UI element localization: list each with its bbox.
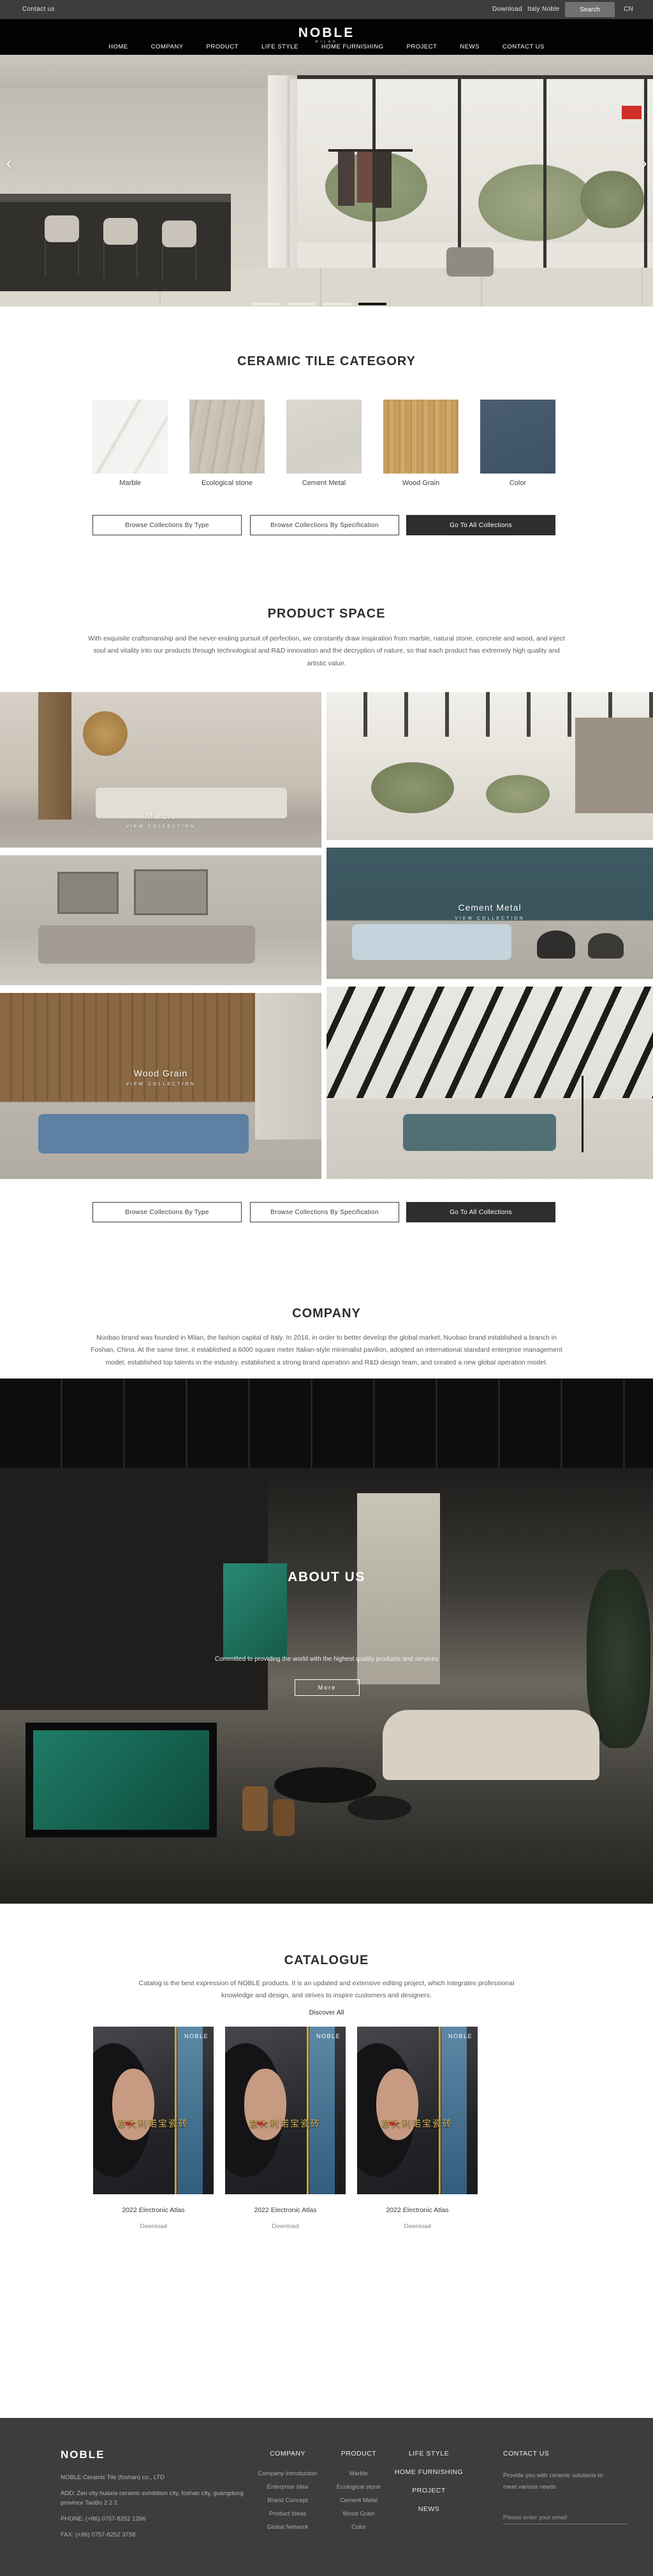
footer-col-title: CONTACT US xyxy=(503,2450,637,2457)
gallery-decor xyxy=(134,869,208,915)
catalogue-download-link[interactable]: Download xyxy=(357,2223,478,2230)
main-nav: HOME COMPANY PRODUCT LIFE STYLE HOME FUR… xyxy=(0,43,653,50)
nav-product[interactable]: PRODUCT xyxy=(207,43,238,50)
nav-contact-us[interactable]: CONTACT US xyxy=(503,43,545,50)
footer-link[interactable]: Marble xyxy=(322,2470,395,2477)
gallery-wood-grain-image[interactable]: Wood Grain VIEW COLLECTION xyxy=(0,993,321,1179)
gallery-grey-room-image[interactable] xyxy=(0,855,321,985)
browse-by-type-button[interactable]: Browse Collections By Type xyxy=(92,515,242,535)
bar-stool-decor xyxy=(162,221,196,247)
bar-stool-decor xyxy=(103,242,138,278)
hero-garment-decor xyxy=(357,152,372,203)
catalogue-cover-3[interactable]: NOBLE 意大利诺宝瓷砖 xyxy=(357,2027,478,2194)
gallery-decor xyxy=(255,993,321,1140)
footer-link[interactable]: Product Ideas xyxy=(246,2510,330,2517)
hero-garment-decor xyxy=(338,152,355,206)
gallery-decor xyxy=(486,775,550,813)
nav-company[interactable]: COMPANY xyxy=(151,43,184,50)
footer-link[interactable]: Color xyxy=(322,2524,395,2531)
product-space-paragraph: With exquisite craftsmanship and the nev… xyxy=(84,633,569,670)
contact-us-link[interactable]: Contact us xyxy=(22,6,55,13)
footer-col-contact: CONTACT US Provide you with ceramic solu… xyxy=(503,2450,637,2524)
tile-swatch-marble[interactable] xyxy=(92,400,168,474)
about-stool-decor xyxy=(273,1799,295,1836)
hero-carousel: ‹ › xyxy=(0,55,653,307)
hero-plant-decor xyxy=(478,164,593,241)
footer-link[interactable]: Enterprise Idea xyxy=(246,2484,330,2491)
language-toggle[interactable]: CN xyxy=(624,6,633,13)
gallery-cement-label: Cement Metal xyxy=(326,902,653,913)
gallery-marble-label: Marble xyxy=(0,811,321,821)
cover-decor xyxy=(309,2027,335,2194)
tile-swatch-ecological-stone[interactable] xyxy=(189,400,265,474)
nav-news[interactable]: NEWS xyxy=(460,43,480,50)
cover-brand: NOBLE xyxy=(316,2033,341,2039)
hero-curtain-decor xyxy=(268,75,297,268)
gallery-decor xyxy=(403,1114,556,1151)
gallery-decor xyxy=(582,1076,583,1152)
hero-plant-decor xyxy=(580,171,644,228)
search-button[interactable]: Search xyxy=(565,2,615,17)
cover-title: 意大利诺宝瓷砖 xyxy=(361,2117,473,2130)
carousel-dash-active[interactable] xyxy=(358,303,386,305)
category-title: CERAMIC TILE CATEGORY xyxy=(0,354,653,369)
gallery-cement-metal-image[interactable]: Cement Metal VIEW COLLECTION xyxy=(326,848,653,979)
carousel-dash[interactable] xyxy=(287,303,315,305)
catalogue-paragraph: Catalog is the best expression of NOBLE … xyxy=(122,1978,531,2002)
email-input[interactable] xyxy=(503,2512,627,2524)
italy-noble-link[interactable]: Italy Noble xyxy=(527,6,560,13)
tile-label: Ecological stone xyxy=(189,479,265,487)
about-stool-decor xyxy=(242,1786,268,1831)
company-title: COMPANY xyxy=(0,1306,653,1321)
cover-title: 意大利诺宝瓷砖 xyxy=(229,2117,341,2130)
footer-col-company: COMPANY Company Introduction Enterprise … xyxy=(246,2450,330,2537)
footer-col-title: PRODUCT xyxy=(322,2450,395,2457)
gallery-decor xyxy=(57,872,119,914)
footer-link[interactable]: PROJECT xyxy=(386,2487,472,2494)
footer-contact-text: Provide you with ceramic solutions to me… xyxy=(503,2470,618,2493)
hero-garment-decor xyxy=(375,152,392,208)
footer-link[interactable]: Cement Metal xyxy=(322,2497,395,2504)
next-arrow-icon[interactable]: › xyxy=(638,150,650,176)
cover-decor xyxy=(439,2027,441,2194)
gallery-view-collection: VIEW COLLECTION xyxy=(0,1082,321,1087)
footer-link[interactable]: HOME FURNISHING xyxy=(386,2468,472,2476)
browse-by-spec-button[interactable]: Browse Collections By Specification xyxy=(250,515,399,535)
download-link[interactable]: Download xyxy=(492,6,522,13)
gallery-decor xyxy=(537,930,575,959)
hero-window-frame xyxy=(543,75,547,268)
bar-stool-decor xyxy=(103,218,138,245)
bar-stool-decor xyxy=(162,245,196,280)
gallery-marble-image[interactable]: Marble VIEW COLLECTION xyxy=(0,692,321,848)
gallery-decor xyxy=(38,692,71,820)
catalogue-download-link[interactable]: Download xyxy=(225,2223,346,2230)
footer-company-info: NOBLE Ceramic Tile (foshan) co., LTD ADD… xyxy=(61,2473,246,2545)
gallery-decor xyxy=(371,762,454,813)
nav-home[interactable]: HOME xyxy=(108,43,128,50)
gallery-view-collection: VIEW COLLECTION xyxy=(0,825,321,829)
catalogue-item-name: 2022 Electronic Atlas xyxy=(225,2206,346,2214)
footer-link[interactable]: LIFE STYLE xyxy=(386,2450,472,2457)
bar-stool-decor xyxy=(45,240,79,275)
footer-col-product: PRODUCT Marble Ecological stone Cement M… xyxy=(322,2450,395,2537)
catalogue-cover-1[interactable]: NOBLE 意大利诺宝瓷砖 xyxy=(93,2027,214,2194)
footer-link[interactable]: Wood Grain xyxy=(322,2510,395,2517)
gallery-decor xyxy=(588,933,624,959)
footer-fax: FAX: (+86) 0757-8252 3758 xyxy=(61,2530,246,2540)
nav-home-furnishing[interactable]: HOME FURNISHING xyxy=(321,43,384,50)
nav-project[interactable]: PROJECT xyxy=(407,43,437,50)
about-paragraph: Committed to providing the world with th… xyxy=(135,1654,518,1665)
footer-link[interactable]: Global Network xyxy=(246,2524,330,2531)
browse-by-type-button[interactable]: Browse Collections By Type xyxy=(92,1202,242,1222)
catalogue-title: CATALOGUE xyxy=(0,1953,653,1968)
logo[interactable]: NOBLE xyxy=(0,25,653,41)
footer-brand: NOBLE xyxy=(61,2449,105,2461)
gallery-decor xyxy=(352,924,511,960)
hero-pouf-decor xyxy=(446,247,494,277)
catalogue-cover-2[interactable]: NOBLE 意大利诺宝瓷砖 xyxy=(225,2027,346,2194)
cover-decor xyxy=(307,2027,309,2194)
catalogue-download-link[interactable]: Download xyxy=(93,2223,214,2230)
browse-by-spec-button[interactable]: Browse Collections By Specification xyxy=(250,1202,399,1222)
gallery-decor xyxy=(326,987,653,1098)
tile-label: Cement Metal xyxy=(286,479,362,487)
footer-col-life: LIFE STYLE HOME FURNISHING PROJECT NEWS xyxy=(386,2450,472,2524)
hero-counter-decor xyxy=(0,194,231,202)
carousel-dash[interactable] xyxy=(323,303,351,305)
footer-company-name: NOBLE Ceramic Tile (foshan) co., LTD xyxy=(61,2473,246,2483)
tile-swatch-color[interactable] xyxy=(480,400,555,474)
hero-window-frame xyxy=(458,75,461,268)
nav-life-style[interactable]: LIFE STYLE xyxy=(261,43,298,50)
footer: NOBLE NOBLE Ceramic Tile (foshan) co., L… xyxy=(0,2418,653,2576)
footer-col-title: COMPANY xyxy=(246,2450,330,2457)
gallery-decor xyxy=(38,1114,249,1154)
about-section-image: ABOUT US Committed to providing the worl… xyxy=(0,1378,653,1904)
about-lights-decor xyxy=(0,1378,653,1468)
cover-brand: NOBLE xyxy=(448,2033,473,2039)
about-more-button[interactable]: More xyxy=(295,1679,360,1696)
footer-link[interactable]: Company Introduction xyxy=(246,2470,330,2477)
footer-phone: PHONE: (+86) 0757-8252 1266 xyxy=(61,2514,246,2524)
about-table-decor xyxy=(348,1796,411,1820)
tile-label: Color xyxy=(480,479,555,487)
gallery-decor xyxy=(38,925,255,964)
about-plant-decor xyxy=(587,1570,650,1748)
go-all-collections-button[interactable]: Go To All Collections xyxy=(406,515,555,535)
prev-arrow-icon[interactable]: ‹ xyxy=(3,150,15,176)
tile-swatch-wood-grain[interactable] xyxy=(383,400,459,474)
about-title: ABOUT US xyxy=(0,1570,653,1585)
tile-label: Wood Grain xyxy=(383,479,459,487)
tile-swatch-cement-metal[interactable] xyxy=(286,400,362,474)
gallery-decor xyxy=(83,711,128,756)
gallery-striped-loft-image[interactable] xyxy=(326,987,653,1179)
hero-floating-badge[interactable] xyxy=(622,106,642,119)
catalogue-item-name: 2022 Electronic Atlas xyxy=(357,2206,478,2214)
footer-link[interactable]: NEWS xyxy=(386,2505,472,2513)
gallery-decor xyxy=(575,718,653,813)
gallery-view-collection: VIEW COLLECTION xyxy=(326,916,653,921)
about-sofa-decor xyxy=(383,1710,599,1780)
catalogue-item-name: 2022 Electronic Atlas xyxy=(93,2206,214,2214)
cover-decor xyxy=(175,2027,177,2194)
cover-brand: NOBLE xyxy=(184,2033,209,2039)
gallery-terrace-image[interactable] xyxy=(326,692,653,840)
bar-stool-decor xyxy=(45,215,79,242)
footer-address: ADD: Zen city huaxia ceramic exhibition … xyxy=(61,2489,246,2508)
footer-link[interactable]: Ecological stone xyxy=(322,2484,395,2491)
about-tv-screen-decor xyxy=(33,1730,209,1830)
product-space-title: PRODUCT SPACE xyxy=(0,607,653,621)
cover-decor xyxy=(441,2027,467,2194)
page: Contact us Download Italy Noble Search C… xyxy=(0,0,653,2576)
cover-decor xyxy=(177,2027,203,2194)
gallery-wood-label: Wood Grain xyxy=(0,1068,321,1078)
company-paragraph: Nuobao brand was founded in Milan, the f… xyxy=(91,1332,562,1369)
go-all-collections-button[interactable]: Go To All Collections xyxy=(406,1202,555,1222)
footer-link[interactable]: Brand Concept xyxy=(246,2497,330,2504)
discover-all-link[interactable]: Discover All xyxy=(0,2009,653,2016)
hero-window-frame xyxy=(287,75,653,79)
topbar: Contact us Download Italy Noble Search C… xyxy=(0,0,653,19)
carousel-dash[interactable] xyxy=(251,303,279,305)
cover-title: 意大利诺宝瓷砖 xyxy=(97,2117,209,2130)
tile-label: Marble xyxy=(92,479,168,487)
